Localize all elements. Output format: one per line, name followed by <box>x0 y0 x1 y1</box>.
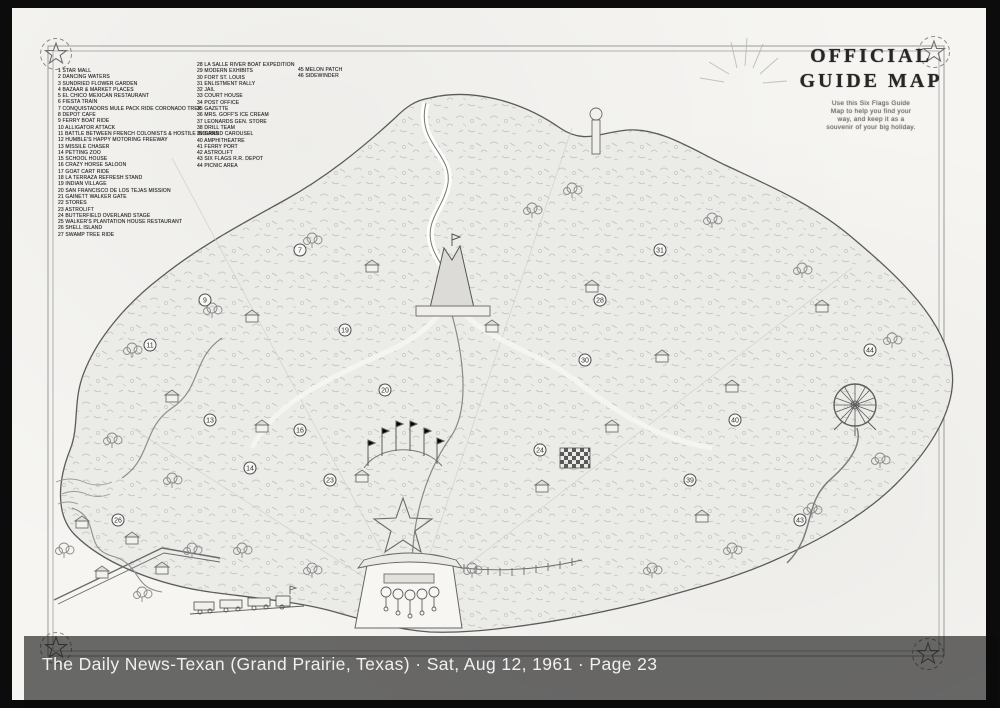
guide-map-title-line2: GUIDE MAP <box>787 69 955 94</box>
station-marker: 19 <box>339 324 352 337</box>
station-marker: 39 <box>684 474 697 487</box>
station-marker: 28 <box>594 294 607 307</box>
legend-line: Use this Six Flags Guide <box>787 100 955 108</box>
viewer-caption: The Daily News-Texan (Grand Prairie, Tex… <box>42 654 657 675</box>
guide-map-title-box: OFFICIAL GUIDE MAP Use this Six Flags Gu… <box>787 44 955 132</box>
legend-line: 27 SWAMP TREE RIDE <box>58 232 219 238</box>
guide-map-subtitle: Use this Six Flags GuideMap to help you … <box>787 100 955 132</box>
station-marker: 13 <box>204 414 217 427</box>
station-marker: 24 <box>534 444 547 457</box>
legend-line: 46 SIDEWINDER <box>298 73 342 79</box>
checkered-plaza <box>560 448 590 468</box>
station-marker: 16 <box>294 424 307 437</box>
viewer-caption-bar: The Daily News-Texan (Grand Prairie, Tex… <box>24 636 998 708</box>
legend-line: Map to help you find your <box>787 108 955 116</box>
station-marker: 14 <box>244 462 257 475</box>
legend-column-1: 1 STAR MALL2 DANCING WATERS3 SUNDRIED FL… <box>58 68 219 238</box>
sunburst-doodle <box>700 38 787 83</box>
newspaper-page-scan: 1 STAR MALL2 DANCING WATERS3 SUNDRIED FL… <box>12 8 986 700</box>
station-marker: 43 <box>794 514 807 527</box>
legend-line: souvenir of your big holiday. <box>787 124 955 132</box>
station-marker: 44 <box>864 344 877 357</box>
station-marker: 9 <box>199 294 212 307</box>
legend-line: 44 PICNIC AREA <box>197 163 295 169</box>
guide-map-title-line1: OFFICIAL <box>787 44 955 69</box>
tower-doodle <box>590 108 602 154</box>
station-marker: 26 <box>112 514 125 527</box>
station-marker: 11 <box>144 339 157 352</box>
station-marker: 20 <box>379 384 392 397</box>
newspaper-viewer: { "viewer": { "caption": "The Daily News… <box>0 0 1000 706</box>
station-marker: 23 <box>324 474 337 487</box>
legend-column-3: 45 MELON PATCH46 SIDEWINDER <box>298 67 342 80</box>
station-marker: 30 <box>579 354 592 367</box>
legend-column-2: 28 LA SALLE RIVER BOAT EXPEDITION29 MODE… <box>197 62 295 169</box>
station-marker: 7 <box>294 244 307 257</box>
station-marker: 40 <box>729 414 742 427</box>
legend-line: way, and keep it as a <box>787 116 955 124</box>
station-marker: 31 <box>654 244 667 257</box>
